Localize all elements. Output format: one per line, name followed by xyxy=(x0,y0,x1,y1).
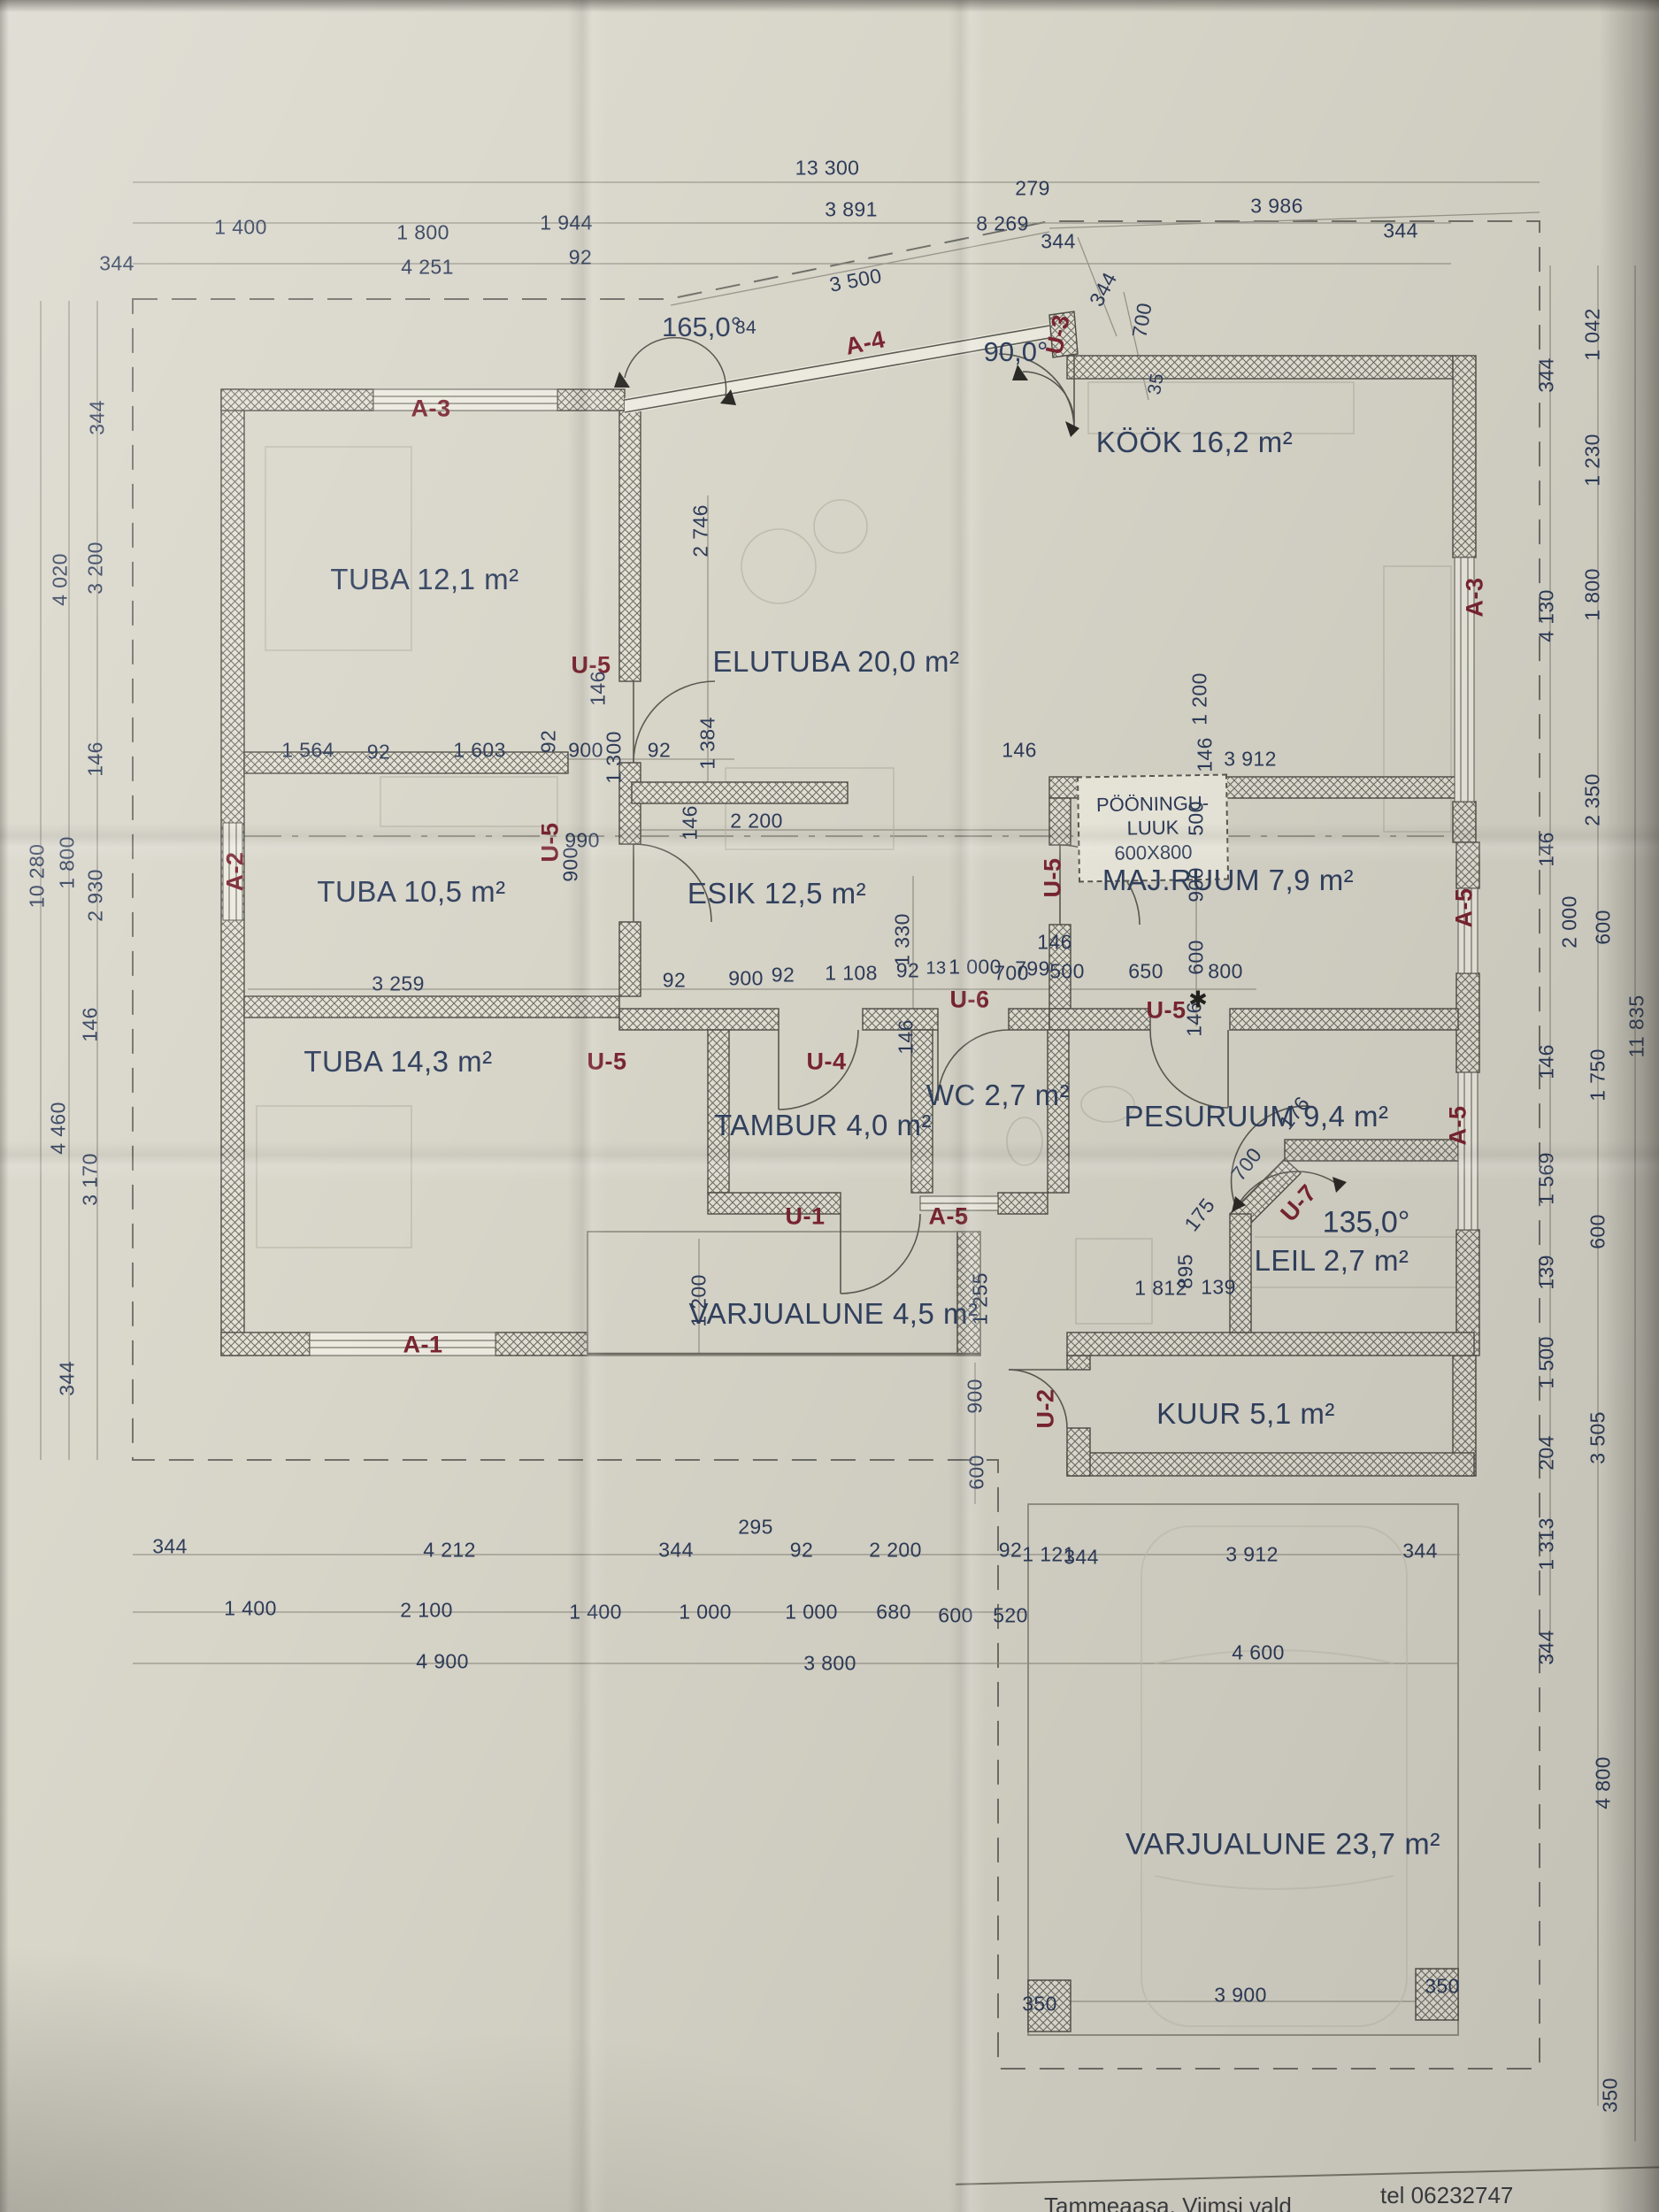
floor-plan-photo: PÖÖNINGU- LUUK 600X800 TUBA 12,1 m²KÖÖK … xyxy=(0,0,1659,2212)
footer-phone: tel 06232747 xyxy=(1380,2182,1513,2209)
symbols-layer: ✱ xyxy=(0,0,1659,2212)
paper-sheet: PÖÖNINGU- LUUK 600X800 TUBA 12,1 m²KÖÖK … xyxy=(0,0,1659,2212)
footer-address: Tammeaasa, Viimsi vald xyxy=(1044,2193,1292,2212)
star-symbol: ✱ xyxy=(1188,987,1208,1014)
